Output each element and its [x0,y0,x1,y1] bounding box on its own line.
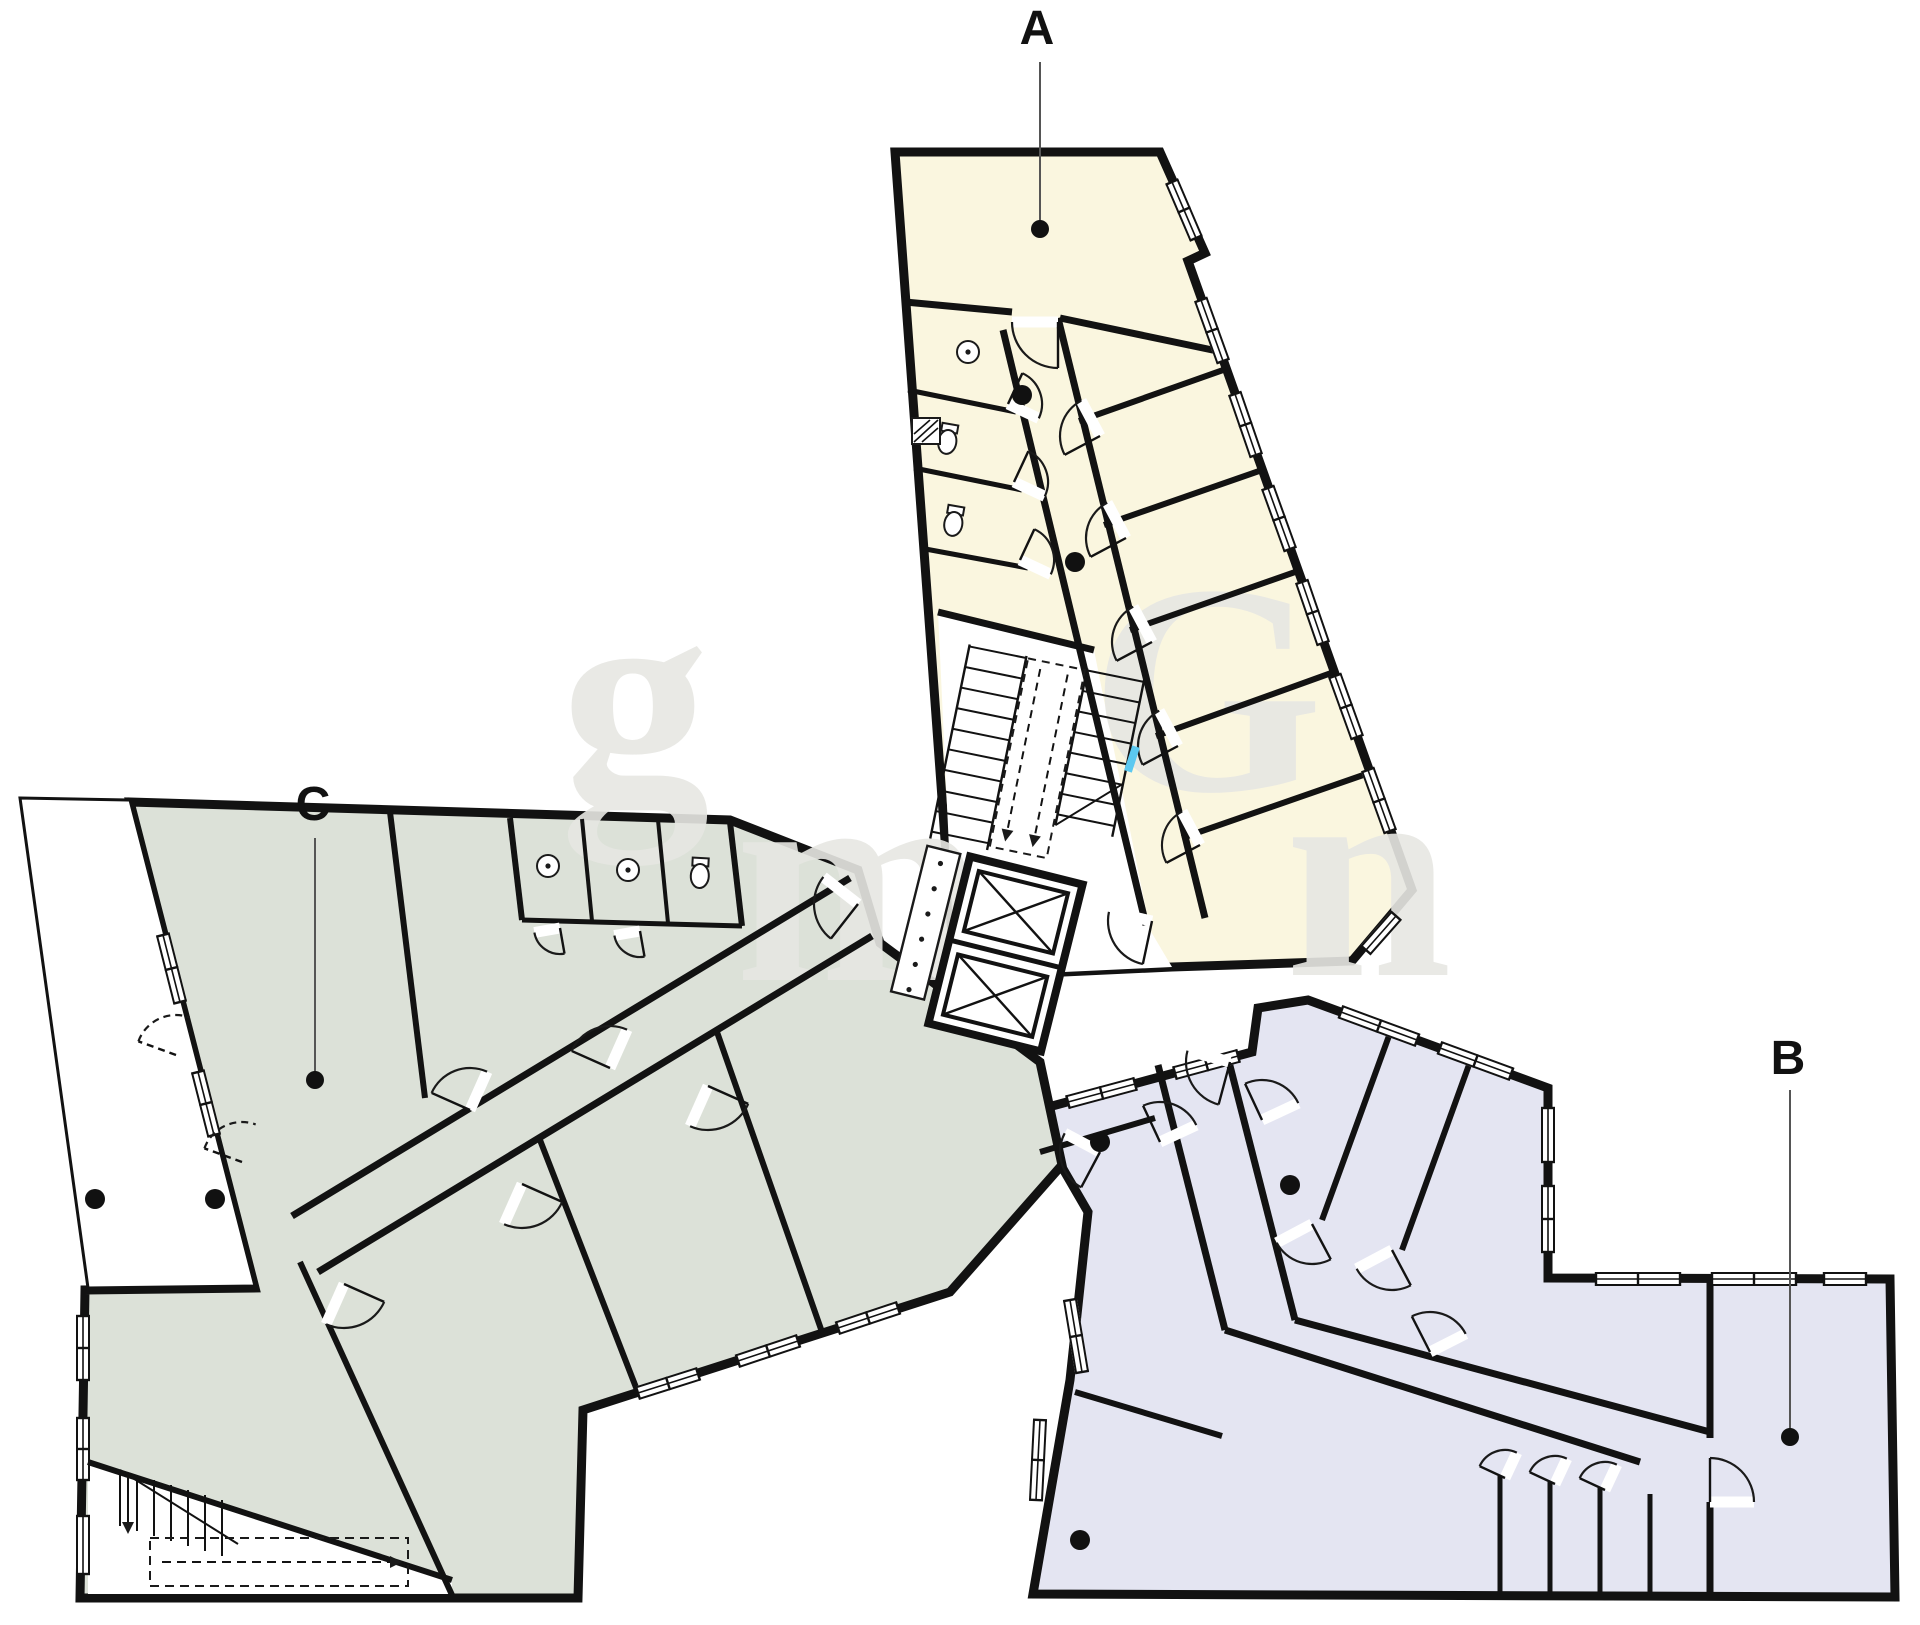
toilet-fixture [690,858,710,889]
column-dot [1070,1530,1090,1550]
leader-dot-a [1031,220,1049,238]
column-dot [1280,1175,1300,1195]
wing-a-label: A [1020,2,1055,55]
wing-b-label: B [1771,1032,1806,1085]
column-dot [1065,552,1085,572]
leader-dot-c [306,1071,324,1089]
watermark-letter: n [1285,708,1452,1040]
floor-plan-canvas: g m G n A B C [0,0,1920,1625]
column-dot [1090,1132,1110,1152]
floor-plan-page: g m G n A B C [0,0,1920,1625]
column-dot [85,1189,105,1209]
leader-dot-b [1781,1428,1799,1446]
column-dot [205,1189,225,1209]
column-dot [1012,385,1032,405]
wing-c-label: C [296,778,331,831]
